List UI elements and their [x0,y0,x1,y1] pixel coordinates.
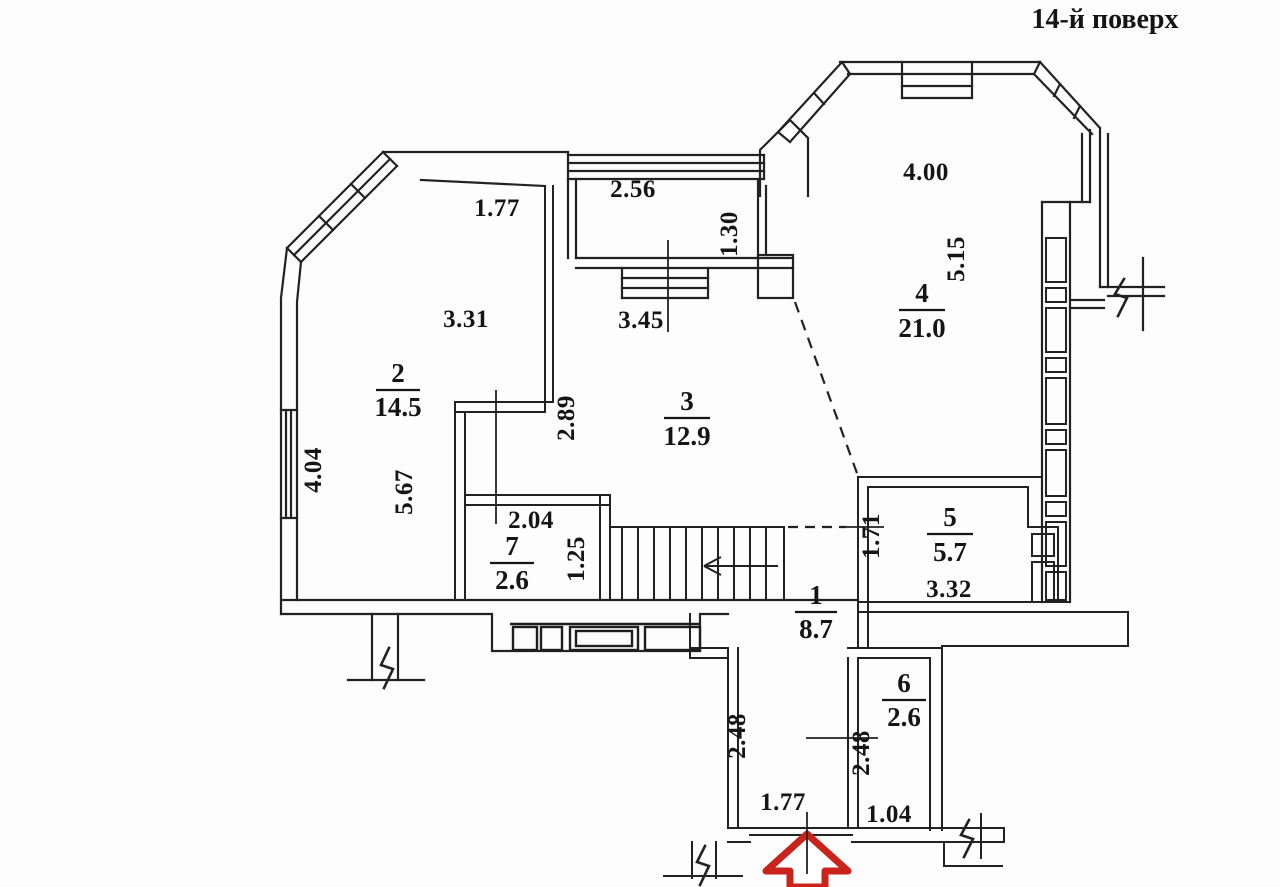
dim-balcony-window: 3.45 [618,307,664,334]
svg-text:6: 6 [897,668,911,698]
svg-text:1: 1 [809,580,823,610]
svg-text:12.9: 12.9 [663,421,710,451]
dim-room6-depth: 2.48 [848,730,875,776]
dim-room2-depth: 5.67 [391,469,418,515]
floorplan-page: 14-й поверх 1 8.7 2 14.5 3 12.9 4 21.0 5… [0,0,1280,887]
dim-hall-depth: 2.48 [724,713,751,759]
svg-text:7: 7 [505,531,519,561]
dim-room4-depth: 5.15 [943,236,970,282]
svg-text:5.7: 5.7 [933,537,967,567]
dim-room6-width: 1.04 [866,801,912,828]
dim-room5-width: 3.32 [926,576,972,603]
room-3-label: 3 12.9 [663,386,710,451]
dashed-boundaries [788,302,858,527]
svg-text:4: 4 [915,278,929,308]
dim-balcony-depth: 1.30 [716,211,743,257]
floorplan-drawing: 14-й поверх 1 8.7 2 14.5 3 12.9 4 21.0 5… [0,0,1280,887]
svg-text:21.0: 21.0 [898,313,945,343]
dim-room7-depth: 1.25 [563,536,590,582]
staircase [622,527,778,600]
svg-text:2.6: 2.6 [887,702,921,732]
walls-interior [455,186,1128,885]
room-7-label: 7 2.6 [490,531,534,595]
room-2-label: 2 14.5 [374,358,421,422]
svg-text:2: 2 [391,358,405,388]
vent-shaft-boxes [1046,238,1066,600]
dimension-ticks [496,240,884,738]
dim-room3-width: 2.89 [553,395,580,441]
svg-text:2.6: 2.6 [495,565,529,595]
svg-text:14.5: 14.5 [374,392,421,422]
svg-text:8.7: 8.7 [799,614,833,644]
dim-room5-depth: 1.71 [858,513,885,559]
dim-balcony-width: 2.56 [610,176,656,203]
dim-room2-top: 1.77 [474,195,520,222]
room-1-label: 1 8.7 [795,580,837,644]
closet-row [510,624,700,650]
dim-room2-width: 3.31 [443,306,489,333]
dim-entry-width: 1.77 [760,789,806,816]
floor-title: 14-й поверх [1031,4,1178,35]
dim-left-window: 4.04 [300,447,327,493]
dim-room4-width: 4.00 [903,159,949,186]
dim-room7-width: 2.04 [508,507,554,534]
svg-text:3: 3 [680,386,694,416]
room-6-label: 6 2.6 [882,668,926,732]
svg-text:5: 5 [943,502,957,532]
room-4-label: 4 21.0 [898,278,945,343]
room-5-label: 5 5.7 [927,502,973,567]
